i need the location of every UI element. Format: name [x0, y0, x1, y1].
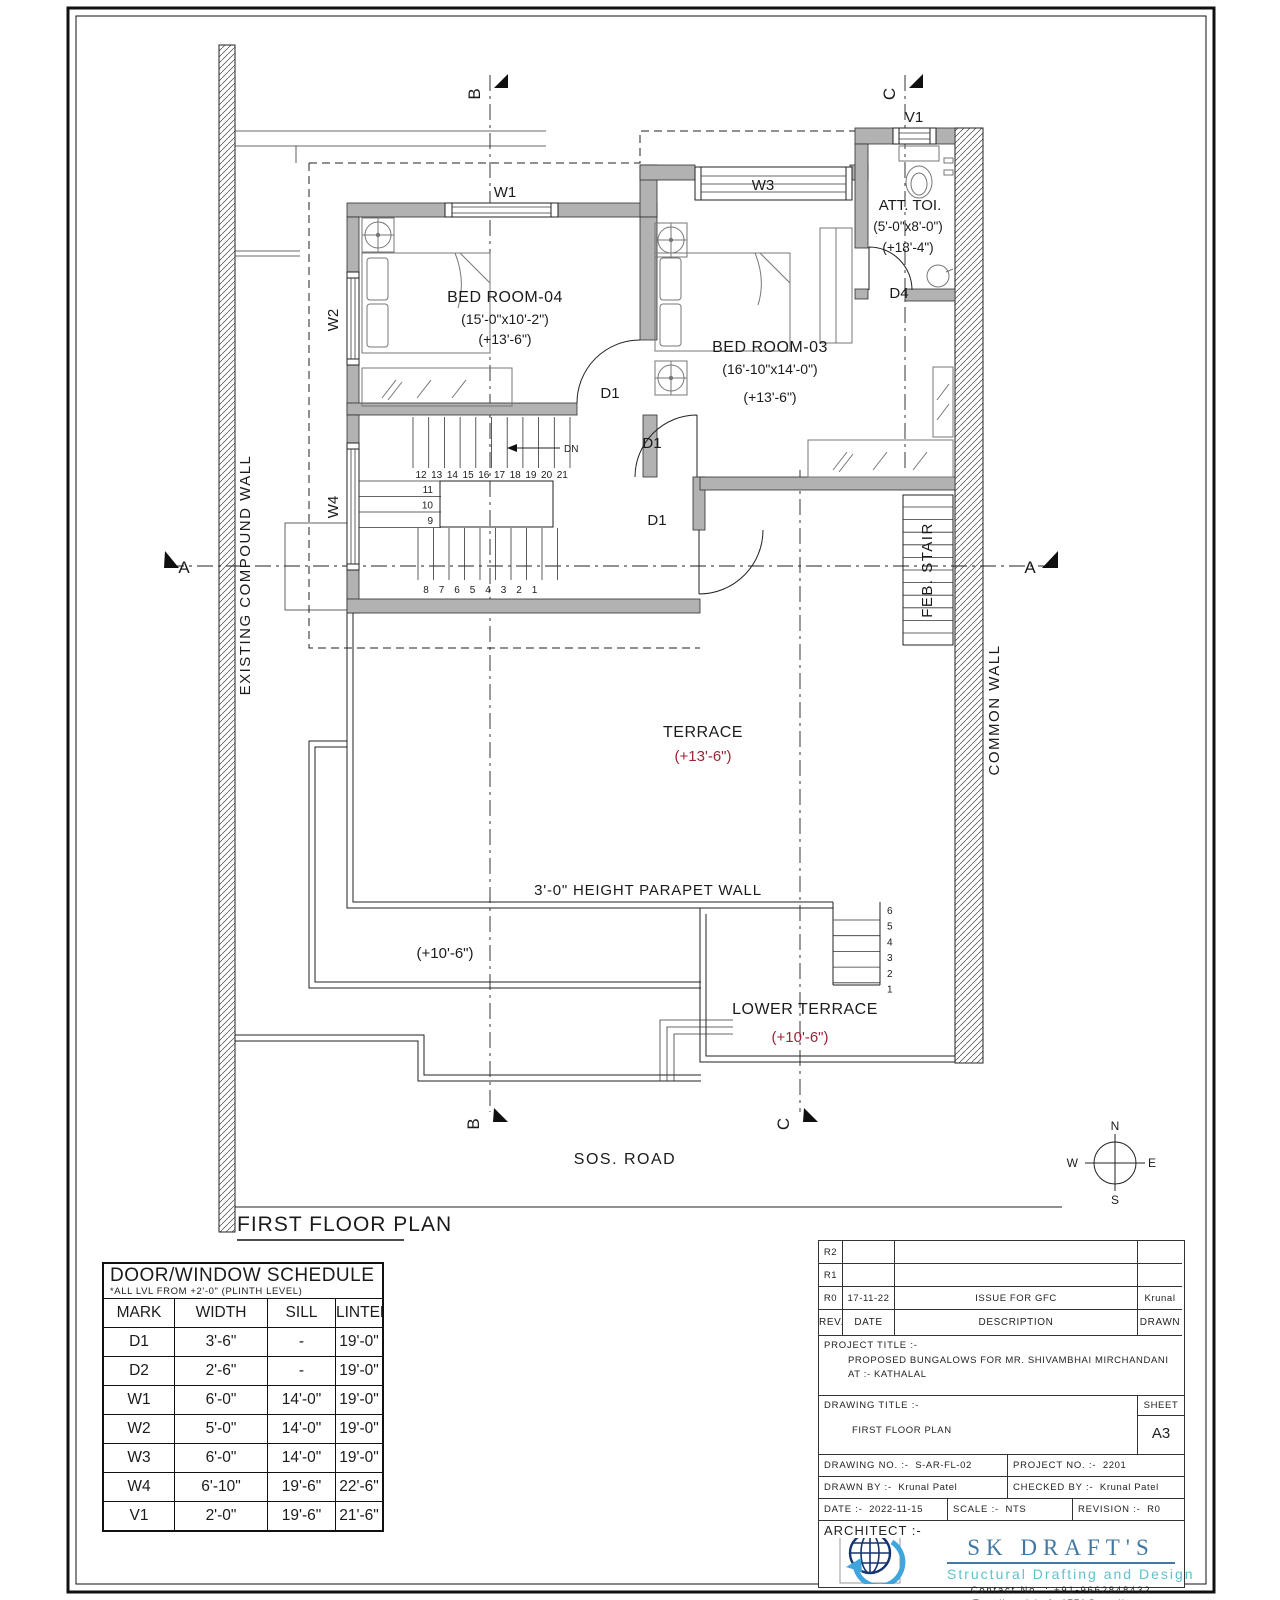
section-a-left: A — [178, 558, 190, 577]
stair-step-number: 7 — [439, 585, 445, 596]
scale-label: SCALE :- — [953, 1504, 999, 1515]
scale-value: NTS — [1005, 1504, 1026, 1515]
bedroom3-level: (+13'-6") — [743, 389, 796, 405]
window-w4 — [347, 443, 359, 570]
tag-w3: W3 — [752, 177, 775, 194]
stair-step-number: 1 — [887, 985, 893, 996]
plan-title: FIRST FLOOR PLAN — [237, 1213, 452, 1240]
rev-cell — [843, 1264, 895, 1287]
sheet-box: SHEET A3 — [1137, 1396, 1184, 1454]
schedule-cell: 6'-0" — [174, 1443, 267, 1472]
window-w1 — [445, 203, 558, 217]
stair-step-number: 2 — [887, 969, 893, 980]
schedule-cell: 19'-0" — [335, 1356, 382, 1385]
schedule-cell: 6'-10" — [174, 1472, 267, 1501]
tag-d1: D1 — [600, 385, 619, 402]
brand-name: SK DRAFT'S — [947, 1535, 1175, 1564]
tap — [944, 158, 953, 163]
schedule-cell: 2'-6" — [174, 1356, 267, 1385]
door-d1-terrace-arc — [699, 530, 763, 594]
stair-step-number: 13 — [431, 470, 443, 481]
plan-title-text: FIRST FLOOR PLAN — [237, 1213, 452, 1236]
mirror-unit — [933, 367, 953, 437]
drawing-no-label: DRAWING NO. :- — [824, 1460, 909, 1471]
roof-level: (+10'-6") — [417, 945, 474, 962]
rev-cell: R1 — [819, 1264, 843, 1287]
sk-drafts-logo — [839, 1538, 917, 1584]
compass-e: E — [1148, 1156, 1156, 1170]
stair-step-number: 16 — [478, 470, 490, 481]
rev-cell — [843, 1241, 895, 1264]
revision-table: R2 R1 R0 17-11-22 ISSUE FOR GFC Krunal R… — [819, 1241, 1184, 1336]
rev-cell: ISSUE FOR GFC — [895, 1287, 1138, 1310]
schedule-subtitle: *ALL LVL FROM +2'-0" (PLINTH LEVEL) — [110, 1286, 378, 1297]
common-wall: COMMON WALL — [955, 128, 1003, 1063]
globe-logo-icon — [839, 1538, 917, 1584]
schedule-col-width: WIDTH — [174, 1299, 267, 1327]
compass-s: S — [1111, 1193, 1119, 1207]
drawing-no-value: S-AR-FL-02 — [915, 1460, 972, 1471]
schedule-header: DOOR/WINDOW SCHEDULE *ALL LVL FROM +2'-0… — [104, 1264, 382, 1299]
bedroom4-level: (+13'-6") — [478, 331, 531, 347]
schedule-cell: 19'-6" — [267, 1472, 335, 1501]
sheet-number: A3 — [1138, 1416, 1184, 1452]
stair-step-number: 20 — [541, 470, 553, 481]
door-window-schedule: DOOR/WINDOW SCHEDULE *ALL LVL FROM +2'-0… — [102, 1262, 384, 1532]
schedule-cell: 21'-6" — [335, 1501, 382, 1530]
schedule-cell: V1 — [104, 1501, 174, 1530]
tag-w4: W4 — [325, 496, 342, 519]
pillow — [367, 304, 388, 347]
rev-cell — [895, 1241, 1138, 1264]
schedule-col-mark: MARK — [104, 1299, 174, 1327]
schedule-cell: - — [267, 1356, 335, 1385]
checked-by-label: CHECKED BY :- — [1013, 1482, 1093, 1493]
pillow — [367, 258, 388, 300]
stair-step-number: 5 — [470, 585, 476, 596]
cad-sheet: EXISTING COMPOUND WALL COMMON WALL — [0, 0, 1280, 1600]
stair-step-number: 3 — [501, 585, 507, 596]
stair-step-number: 9 — [427, 516, 433, 527]
toilet-level: (+18'-4") — [882, 240, 933, 255]
stair-step-number: 4 — [485, 585, 491, 596]
stair-step-number: 1 — [532, 585, 538, 596]
stair-step-number: 4 — [887, 937, 893, 948]
rev-header: DRAWN — [1138, 1310, 1182, 1336]
walls — [347, 128, 955, 613]
compass-rose: N S W E — [1067, 1119, 1156, 1207]
existing-compound-wall-label: EXISTING COMPOUND WALL — [237, 455, 254, 696]
bedroom4-name: BED ROOM-04 — [447, 289, 563, 306]
brand-tagline: Structural Drafting and Design — [947, 1566, 1175, 1582]
stair-step-number: 5 — [887, 922, 893, 933]
rev-header: REV. — [819, 1310, 843, 1336]
fan-icon — [655, 361, 687, 395]
lower-terrace-name: LOWER TERRACE — [732, 1001, 878, 1018]
pillow — [660, 258, 681, 300]
bedroom3-name: BED ROOM-03 — [712, 339, 828, 356]
revision-label: REVISION :- — [1078, 1504, 1141, 1515]
brand-block: SK DRAFT'S Structural Drafting and Desig… — [947, 1535, 1175, 1600]
drawn-by-row: DRAWN BY :- Krunal Patel CHECKED BY :- K… — [819, 1477, 1184, 1499]
parapet-label: 3'-0" HEIGHT PARAPET WALL — [534, 882, 762, 899]
revision-value: R0 — [1147, 1504, 1160, 1515]
dn-arrow: DN — [507, 444, 578, 455]
wc-bowl — [906, 166, 932, 198]
bedroom3-size: (16'-10"x14'-0") — [722, 361, 817, 377]
schedule-cell: 14'-0" — [267, 1443, 335, 1472]
drawn-by-label: DRAWN BY :- — [824, 1482, 892, 1493]
rev-cell — [895, 1264, 1138, 1287]
brand-contact: Contact No. : +91-9662848432 — [947, 1585, 1175, 1596]
project-title-line1: PROPOSED BUNGALOWS FOR MR. SHIVAMBHAI MI… — [848, 1355, 1179, 1366]
tag-w1: W1 — [494, 184, 517, 201]
rev-header: DATE — [843, 1310, 895, 1336]
fan-icon — [362, 218, 394, 252]
stair-step-number: 10 — [422, 501, 434, 512]
stair-step-number: 6 — [887, 906, 893, 917]
schedule-col-sill: SILL — [267, 1299, 335, 1327]
schedule-cell: 22'-6" — [335, 1472, 382, 1501]
schedule-cell: W4 — [104, 1472, 174, 1501]
stair-step-number: 19 — [525, 470, 537, 481]
window-w2 — [347, 272, 359, 365]
schedule-cell: D2 — [104, 1356, 174, 1385]
stair-step-number: 6 — [454, 585, 460, 596]
rev-cell: Krunal — [1138, 1287, 1182, 1310]
rev-cell — [1138, 1264, 1182, 1287]
lower-terrace-level: (+10'-6") — [772, 1029, 829, 1046]
date-value: 2022-11-15 — [869, 1504, 923, 1515]
tag-d1: D1 — [642, 435, 661, 452]
schedule-cell: 14'-0" — [267, 1414, 335, 1443]
terrace-outline: 654321 — [235, 613, 1062, 1207]
date-label: DATE :- — [824, 1504, 863, 1515]
drawn-by-value: Krunal Patel — [898, 1482, 957, 1493]
toilet-name: ATT. TOI. — [879, 197, 942, 214]
wardrobe — [820, 228, 852, 343]
schedule-cell: 6'-0" — [174, 1385, 267, 1414]
stair-step-number: 18 — [510, 470, 522, 481]
tag-d1: D1 — [647, 512, 666, 529]
rev-cell: R2 — [819, 1241, 843, 1264]
stair-step-number: 3 — [887, 953, 893, 964]
schedule-cell: 19'-0" — [335, 1385, 382, 1414]
drawing-no-row: DRAWING NO. :- S-AR-FL-02 PROJECT NO. :-… — [819, 1455, 1184, 1477]
architect-section: ARCHITECT :- SK DRAFT'S Structural Draft… — [819, 1521, 1184, 1586]
terrace-level: (+13'-6") — [675, 748, 732, 765]
project-no-label: PROJECT NO. :- — [1013, 1460, 1096, 1471]
dn-label: DN — [564, 444, 578, 455]
project-title-label: PROJECT TITLE :- — [824, 1340, 1179, 1351]
schedule-cell: W2 — [104, 1414, 174, 1443]
section-b-bottom: B — [464, 1118, 483, 1129]
stair-step-number: 2 — [516, 585, 522, 596]
title-block: R2 R1 R0 17-11-22 ISSUE FOR GFC Krunal R… — [818, 1240, 1185, 1588]
rev-cell — [1138, 1241, 1182, 1264]
rev-header: DESCRIPTION — [895, 1310, 1138, 1336]
tap — [944, 170, 953, 175]
rev-cell: R0 — [819, 1287, 843, 1310]
schedule-cell: 19'-6" — [267, 1501, 335, 1530]
stair-step-number: 11 — [423, 485, 434, 496]
schedule-cell: 3'-6" — [174, 1327, 267, 1356]
schedule-cell: 19'-0" — [335, 1443, 382, 1472]
schedule-cell: 19'-0" — [335, 1414, 382, 1443]
schedule-grid: MARK WIDTH SILL LINTEL D1 3'-6" - 19'-0"… — [104, 1299, 382, 1530]
schedule-title: DOOR/WINDOW SCHEDULE — [110, 1266, 378, 1286]
section-b-top: B — [465, 88, 484, 99]
bed — [655, 253, 790, 351]
stair-step-number: 21 — [557, 470, 569, 481]
blanket-fold — [755, 253, 790, 305]
fan-icon — [655, 223, 687, 257]
project-title-section: PROJECT TITLE :- PROPOSED BUNGALOWS FOR … — [819, 1336, 1184, 1396]
tag-v1: V1 — [905, 109, 923, 126]
feb-stair: FEB. STAIR — [903, 495, 953, 645]
staircase: 12131415161718192021 11109 87654321 DN — [359, 417, 578, 596]
sheet-label: SHEET — [1138, 1396, 1184, 1416]
project-no-value: 2201 — [1103, 1460, 1127, 1471]
checked-by-value: Krunal Patel — [1100, 1482, 1159, 1493]
schedule-cell: - — [267, 1327, 335, 1356]
drawing-title-value: FIRST FLOOR PLAN — [852, 1425, 1132, 1436]
compass-w: W — [1067, 1156, 1079, 1170]
schedule-cell: W3 — [104, 1443, 174, 1472]
dresser — [808, 440, 953, 477]
toilet-size: (5'-0"x8'-0") — [873, 219, 943, 234]
wash-basin — [927, 265, 949, 287]
schedule-cell: 2'-0" — [174, 1501, 267, 1530]
tag-d4: D4 — [889, 285, 908, 302]
schedule-cell: 5'-0" — [174, 1414, 267, 1443]
schedule-cell: 14'-0" — [267, 1385, 335, 1414]
stair-step-number: 14 — [447, 470, 459, 481]
schedule-cell: 19'-0" — [335, 1327, 382, 1356]
section-c-top: C — [880, 88, 899, 100]
dresser — [362, 368, 512, 406]
toilet-fixtures — [899, 146, 953, 287]
stair-step-number: 15 — [463, 470, 475, 481]
tag-w2: W2 — [325, 309, 342, 332]
bedroom4-size: (15'-0"x10'-2") — [461, 311, 549, 327]
feb-stair-label: FEB. STAIR — [919, 522, 936, 618]
stair-step-number: 8 — [423, 585, 429, 596]
schedule-col-lintel: LINTEL — [335, 1299, 382, 1327]
section-a-right: A — [1024, 558, 1036, 577]
terrace-name: TERRACE — [663, 724, 743, 741]
drawing-title-section: DRAWING TITLE :- FIRST FLOOR PLAN SHEET … — [819, 1396, 1184, 1455]
schedule-cell: D1 — [104, 1327, 174, 1356]
stair-step-number: 12 — [415, 470, 427, 481]
drawing-title-label: DRAWING TITLE :- — [824, 1400, 1132, 1411]
section-c-bottom: C — [774, 1118, 793, 1130]
existing-compound-wall: EXISTING COMPOUND WALL — [219, 45, 254, 1232]
compass-n: N — [1111, 1119, 1120, 1133]
room-labels: BED ROOM-04 (15'-0"x10'-2") (+13'-6") BE… — [417, 197, 943, 1168]
rev-cell: 17-11-22 — [843, 1287, 895, 1310]
project-title-line2: AT :- KATHALAL — [848, 1369, 1179, 1380]
schedule-cell: W1 — [104, 1385, 174, 1414]
window-v1 — [893, 128, 936, 144]
road-label: SOS. ROAD — [574, 1151, 676, 1168]
common-wall-label: COMMON WALL — [986, 645, 1003, 776]
stair-step-number: 17 — [494, 470, 506, 481]
pillow — [660, 304, 681, 346]
date-scale-revision-row: DATE :- 2022-11-15 SCALE :- NTS REVISION… — [819, 1499, 1184, 1521]
